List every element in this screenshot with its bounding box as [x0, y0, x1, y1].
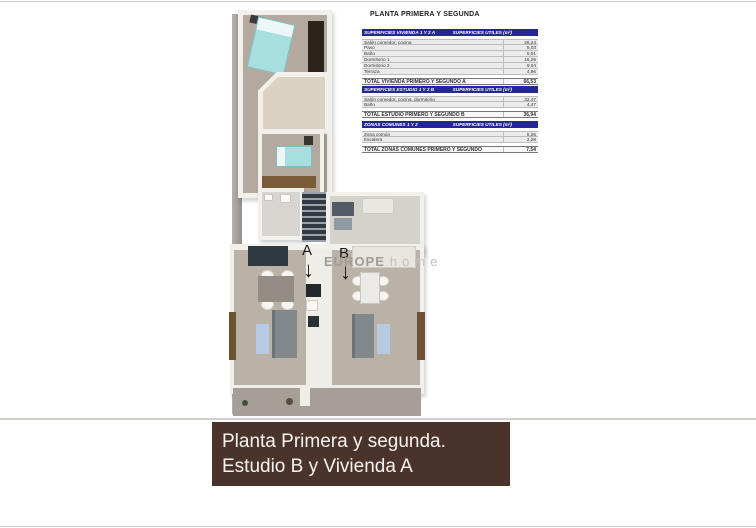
- sofa-a: [272, 310, 297, 358]
- counter-blue-gray: [332, 202, 354, 216]
- bottom-terrace: [233, 385, 421, 416]
- total-label: TOTAL ZONAS COMUNES PRIMERO Y SEGUNDO: [362, 147, 503, 153]
- counter-gray: [334, 218, 352, 230]
- total-value: 36,94: [503, 112, 538, 117]
- row-value: 26,24: [503, 40, 538, 44]
- terrace-floor: [263, 77, 325, 129]
- header-left-label: ZONAS COMUNES 1 Y 2: [364, 122, 418, 127]
- row-label: Baño: [362, 102, 503, 107]
- row-value: 4,47: [503, 102, 538, 107]
- total-label: TOTAL ESTUDIO PRIMERO Y SEGUNDO B: [362, 112, 503, 118]
- wardrobe-dark: [308, 21, 324, 73]
- row-label: Dormitorio 2: [362, 63, 503, 68]
- table-row: Escalera2,28: [362, 137, 538, 143]
- dining-table-a: [258, 276, 294, 302]
- row-value: 5,26: [503, 132, 538, 136]
- header-right-label: SUPERFICIES UTILES (m²): [453, 87, 512, 92]
- row-label: Baño: [362, 51, 503, 56]
- total-label: TOTAL VIVIENDA PRIMERO Y SEGUNDO A: [362, 79, 503, 85]
- row-label: Terraza: [362, 69, 503, 74]
- kitchen-island-a: [248, 246, 288, 266]
- toilet: [280, 194, 291, 203]
- table-total-row: TOTAL VIVIENDA PRIMERO Y SEGUNDO A66,53: [362, 78, 538, 85]
- caption-line-1: Planta Primera y segunda.: [222, 429, 510, 454]
- row-value: 2,28: [503, 137, 538, 142]
- table-header: SUPERFICIES VIVIENDA 1 Y 2 A SUPERFICIES…: [362, 29, 538, 36]
- row-label: Salón comedor, cocina, dormitorio: [362, 97, 503, 102]
- nightstand: [304, 136, 313, 145]
- row-value: 5,01: [503, 51, 538, 56]
- unit-a-arrow-icon: ↓: [303, 259, 314, 281]
- table-total-row: TOTAL ESTUDIO PRIMERO Y SEGUNDO B36,94: [362, 111, 538, 118]
- header-right-label: SUPERFICIES UTILES (m²): [453, 122, 512, 127]
- page: A ↓ B ↓ EUROPEhome PLANTA PRIMERA Y SEGU…: [0, 0, 756, 528]
- header-left-label: SUPERFICIES VIVIENDA 1 Y 2 A: [364, 30, 435, 35]
- table-vivienda: SUPERFICIES VIVIENDA 1 Y 2 A SUPERFICIES…: [362, 29, 538, 85]
- watermark-bold-text: EUROPE: [324, 254, 385, 269]
- total-value: 66,53: [503, 79, 538, 84]
- total-value: 7,54: [503, 147, 538, 152]
- table-comunes: ZONAS COMUNES 1 Y 2 SUPERFICIES UTILES (…: [362, 121, 538, 153]
- appliance-dark: [306, 284, 321, 297]
- row-label: Paso: [362, 45, 503, 50]
- table-estudio: SUPERFICIES ESTUDIO 1 Y 2 B SUPERFICIES …: [362, 86, 538, 118]
- row-value: 16,25: [503, 57, 538, 62]
- row-label: Salón comedor, cocina: [362, 40, 503, 45]
- appliance-white: [306, 300, 318, 311]
- rug-a: [256, 324, 269, 354]
- header-left-label: SUPERFICIES ESTUDIO 1 Y 2 B: [364, 87, 434, 92]
- appliance-dark-small: [308, 316, 319, 327]
- row-value: 32,47: [503, 97, 538, 101]
- bed-2-pillow: [277, 147, 285, 166]
- table-total-row: TOTAL ZONAS COMUNES PRIMERO Y SEGUNDO7,5…: [362, 146, 538, 153]
- wardrobe-wood: [262, 176, 316, 188]
- europe-home-watermark: EUROPEhome: [324, 253, 442, 271]
- plant: [286, 398, 293, 405]
- dining-table-b: [360, 272, 380, 304]
- window-ledge-right: [417, 312, 425, 360]
- divider-line: [0, 418, 756, 420]
- sofa-b: [352, 314, 374, 358]
- row-label: Escalera: [362, 137, 503, 142]
- sink: [264, 194, 273, 201]
- window-ledge-left: [229, 312, 236, 360]
- plant: [242, 400, 248, 406]
- row-label: Dormitorio 1: [362, 57, 503, 62]
- terrace-divider-wall: [300, 388, 310, 406]
- row-label: Zona común: [362, 132, 503, 137]
- staircase: [302, 192, 326, 242]
- row-value: 9,04: [503, 63, 538, 68]
- rug-b: [377, 324, 390, 354]
- table-header: ZONAS COMUNES 1 Y 2 SUPERFICIES UTILES (…: [362, 121, 538, 128]
- row-value: 4,96: [503, 69, 538, 74]
- table-row: Baño4,47: [362, 102, 538, 108]
- bottom-border-line: [0, 526, 756, 527]
- caption-line-2: Estudio B y Vivienda A: [222, 454, 510, 479]
- bed-2: [276, 146, 312, 167]
- header-right-label: SUPERFICIES UTILES (m²): [453, 30, 512, 35]
- page-title: PLANTA PRIMERA Y SEGUNDA: [370, 11, 480, 18]
- watermark-light-text: home: [390, 254, 443, 269]
- top-border-line: [0, 1, 756, 2]
- table-header: SUPERFICIES ESTUDIO 1 Y 2 B SUPERFICIES …: [362, 86, 538, 93]
- caption-banner: Planta Primera y segunda. Estudio B y Vi…: [212, 422, 510, 486]
- table-row: Terraza4,96: [362, 69, 538, 75]
- fixture-white: [362, 198, 394, 214]
- row-value: 5,03: [503, 45, 538, 50]
